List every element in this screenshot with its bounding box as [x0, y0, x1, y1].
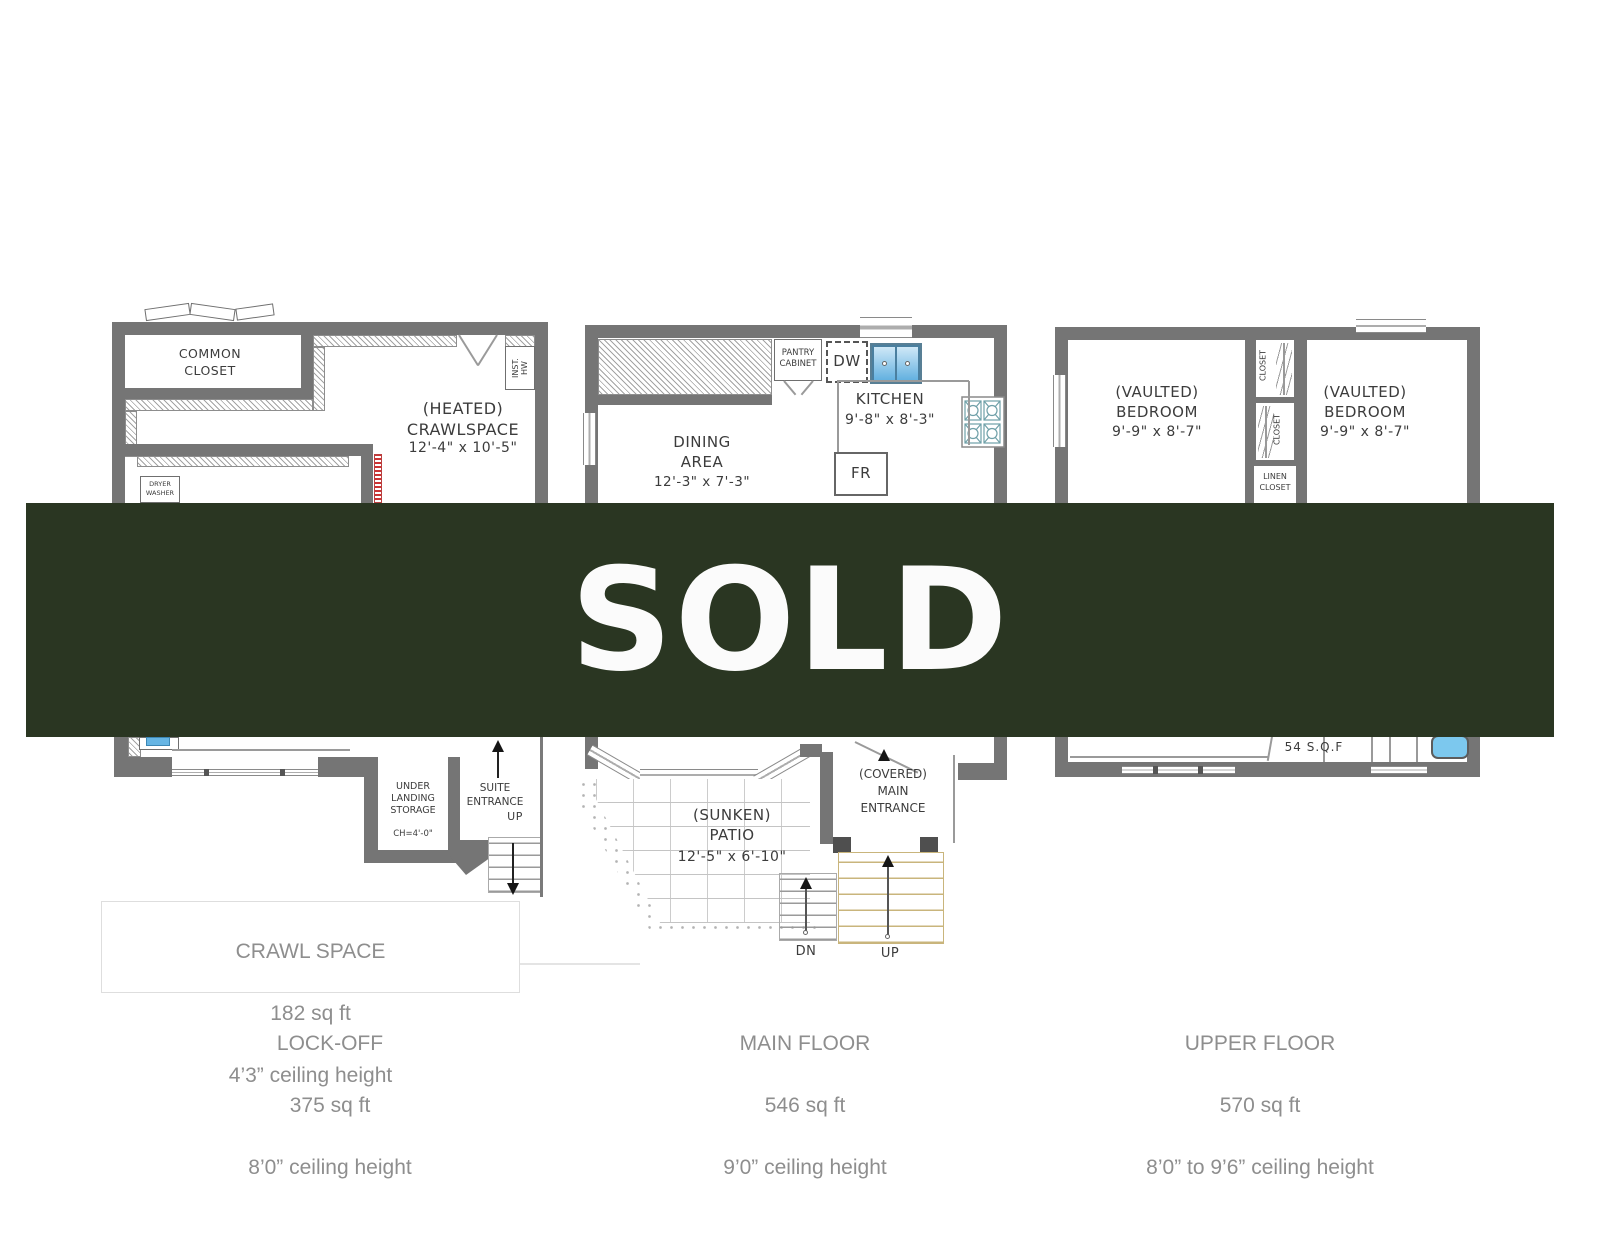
casement-window-icon [144, 303, 190, 321]
caption-area: 182 sq ft [101, 998, 520, 1029]
room-dims-dining: 12'-3" x 7'-3" [640, 474, 764, 490]
stair-start-dot [803, 930, 808, 935]
room-line [1070, 756, 1268, 758]
room-label-patio: (SUNKEN) PATIO [668, 805, 796, 845]
room-line [1389, 737, 1391, 763]
wall [112, 322, 548, 335]
hatch-wall [313, 347, 325, 411]
door-swing [458, 334, 479, 366]
door-swing [477, 334, 498, 366]
wall [585, 395, 772, 405]
faint-line [520, 963, 640, 965]
caption-ceiling: 8’0” ceiling height [180, 1152, 480, 1183]
caption-title: MAIN FLOOR [655, 1028, 955, 1059]
room-label-common-closet: COMMON CLOSET [130, 345, 290, 379]
room-label-fr: FR [834, 464, 888, 482]
stair-label-dn: DN [788, 944, 824, 959]
hatch-wall [125, 399, 313, 411]
casement-window-icon [235, 303, 274, 320]
wall [585, 325, 1007, 338]
post [920, 837, 938, 853]
arrow-shaft [512, 843, 514, 885]
caption-area: 570 sq ft [1085, 1090, 1435, 1121]
window [172, 769, 318, 776]
casement-window-icon [189, 303, 235, 321]
room-label-bedroom-1: (VAULTED) BEDROOM [1082, 382, 1232, 422]
room-label-bedroom-2: (VAULTED) BEDROOM [1290, 382, 1440, 422]
room-label-under-landing: UNDER LANDING STORAGE [378, 781, 448, 817]
wall [301, 335, 313, 400]
arrow-shaft [497, 752, 499, 778]
arrow-up-icon [492, 740, 504, 752]
baseboard-heater-icon [374, 454, 382, 503]
counter-line [172, 749, 350, 751]
room-dims-kitchen: 9'-8" x 8'-3" [830, 412, 950, 428]
counter-line [968, 381, 970, 445]
caption-crawl-space: CRAWL SPACE 182 sq ft 4’3” ceiling heigh… [101, 905, 520, 1122]
arrow-up-icon [878, 749, 890, 761]
counter-line [837, 381, 839, 455]
wall [364, 850, 460, 863]
window [1122, 766, 1235, 774]
room-dims-bedroom-2: 9'-9" x 8'-7" [1290, 424, 1440, 440]
room-label-closet: CLOSET [1273, 410, 1282, 450]
arrow-shaft [887, 866, 889, 936]
caption-ceiling: 8’0” to 9’6” ceiling height [1085, 1152, 1435, 1183]
room-label-kitchen: KITCHEN [830, 390, 950, 408]
floorplan-sheet: COMMON CLOSET INST. HW (HEATED) CRAWLSPA… [0, 0, 1600, 1236]
sold-banner: SOLD [26, 503, 1554, 737]
sink-drain [905, 361, 910, 366]
room-label-dining: DINING AREA [640, 432, 764, 472]
cabinet-line [801, 380, 814, 395]
caption-ceiling: 4’3” ceiling height [101, 1060, 520, 1091]
kitchen-counter [598, 339, 772, 395]
room-label-pantry: PANTRY CABINET [774, 348, 822, 370]
caption-area: 546 sq ft [655, 1090, 955, 1121]
cabinet-line [783, 380, 796, 395]
room-label-dw: DW [826, 352, 868, 370]
wall [800, 744, 822, 757]
window [1356, 319, 1426, 333]
kitchen-sink-icon [870, 343, 922, 384]
wall [820, 752, 833, 844]
wall [958, 763, 1007, 780]
bathtub-icon [1431, 735, 1469, 759]
room-dims-under-landing: CH=4'-0" [378, 829, 448, 839]
wall-line [540, 737, 543, 897]
wall [448, 840, 488, 875]
room-label-inst-hw: INST. HW [511, 348, 529, 388]
room-dims-patio: 12'-5" x 6'-10" [668, 849, 796, 865]
window-mullion [204, 769, 209, 776]
caption-title: CRAWL SPACE [101, 936, 520, 967]
window [860, 317, 912, 338]
wall [112, 322, 125, 503]
hatch-wall [313, 335, 457, 347]
room-label-sqf: 54 S.Q.F [1278, 740, 1350, 754]
arrow-shaft [805, 888, 807, 933]
stair-label-up: UP [498, 810, 532, 823]
window-mullion [1198, 766, 1203, 774]
room-line [1267, 735, 1273, 761]
room-label-suite-entrance: SUITE ENTRANCE [458, 781, 532, 809]
closet-rod [1265, 406, 1267, 458]
window [1371, 766, 1427, 774]
arrow-up-icon [882, 855, 894, 867]
room-line [1371, 737, 1373, 763]
closet-rod [1283, 343, 1285, 395]
sink-drain [882, 361, 887, 366]
sold-banner-text: SOLD [570, 538, 1009, 703]
room-label-dryer-washer: DRYER WASHER [140, 480, 180, 497]
wall [318, 757, 364, 777]
caption-ceiling: 9’0” ceiling height [655, 1152, 955, 1183]
wall-line [953, 755, 955, 843]
wall [125, 444, 373, 456]
room-label-linen-closet: LINEN CLOSET [1252, 471, 1298, 493]
window-mullion [280, 769, 285, 776]
caption-main-floor: MAIN FLOOR 546 sq ft 9’0” ceiling height [655, 997, 955, 1214]
stair-label-up: UP [872, 946, 908, 961]
wall [361, 444, 373, 503]
room-dims-bedroom-1: 9'-9" x 8'-7" [1082, 424, 1232, 440]
wall [114, 757, 172, 777]
hatch-wall [137, 456, 349, 467]
wall [1467, 327, 1480, 503]
wall [364, 757, 378, 863]
caption-upper-floor: UPPER FLOOR 570 sq ft 8’0” to 9’6” ceili… [1085, 997, 1435, 1214]
arrow-up-icon [800, 877, 812, 889]
arrow-down-icon [507, 883, 519, 895]
window [1053, 375, 1066, 447]
sink-icon [146, 737, 170, 746]
post [833, 837, 851, 853]
wall [114, 737, 128, 759]
counter-line [837, 380, 969, 382]
room-label-entrance: (COVERED) MAIN ENTRANCE [833, 766, 953, 817]
room-label-crawlspace: (HEATED) CRAWLSPACE [382, 398, 544, 440]
room-label-closet: CLOSET [1259, 346, 1268, 386]
caption-title: UPPER FLOOR [1085, 1028, 1435, 1059]
room-line [1416, 737, 1418, 763]
window [583, 413, 596, 465]
room-dims-crawlspace: 12'-4" x 10'-5" [382, 440, 544, 456]
stair-start-dot [885, 934, 890, 939]
window-mullion [1153, 766, 1158, 774]
